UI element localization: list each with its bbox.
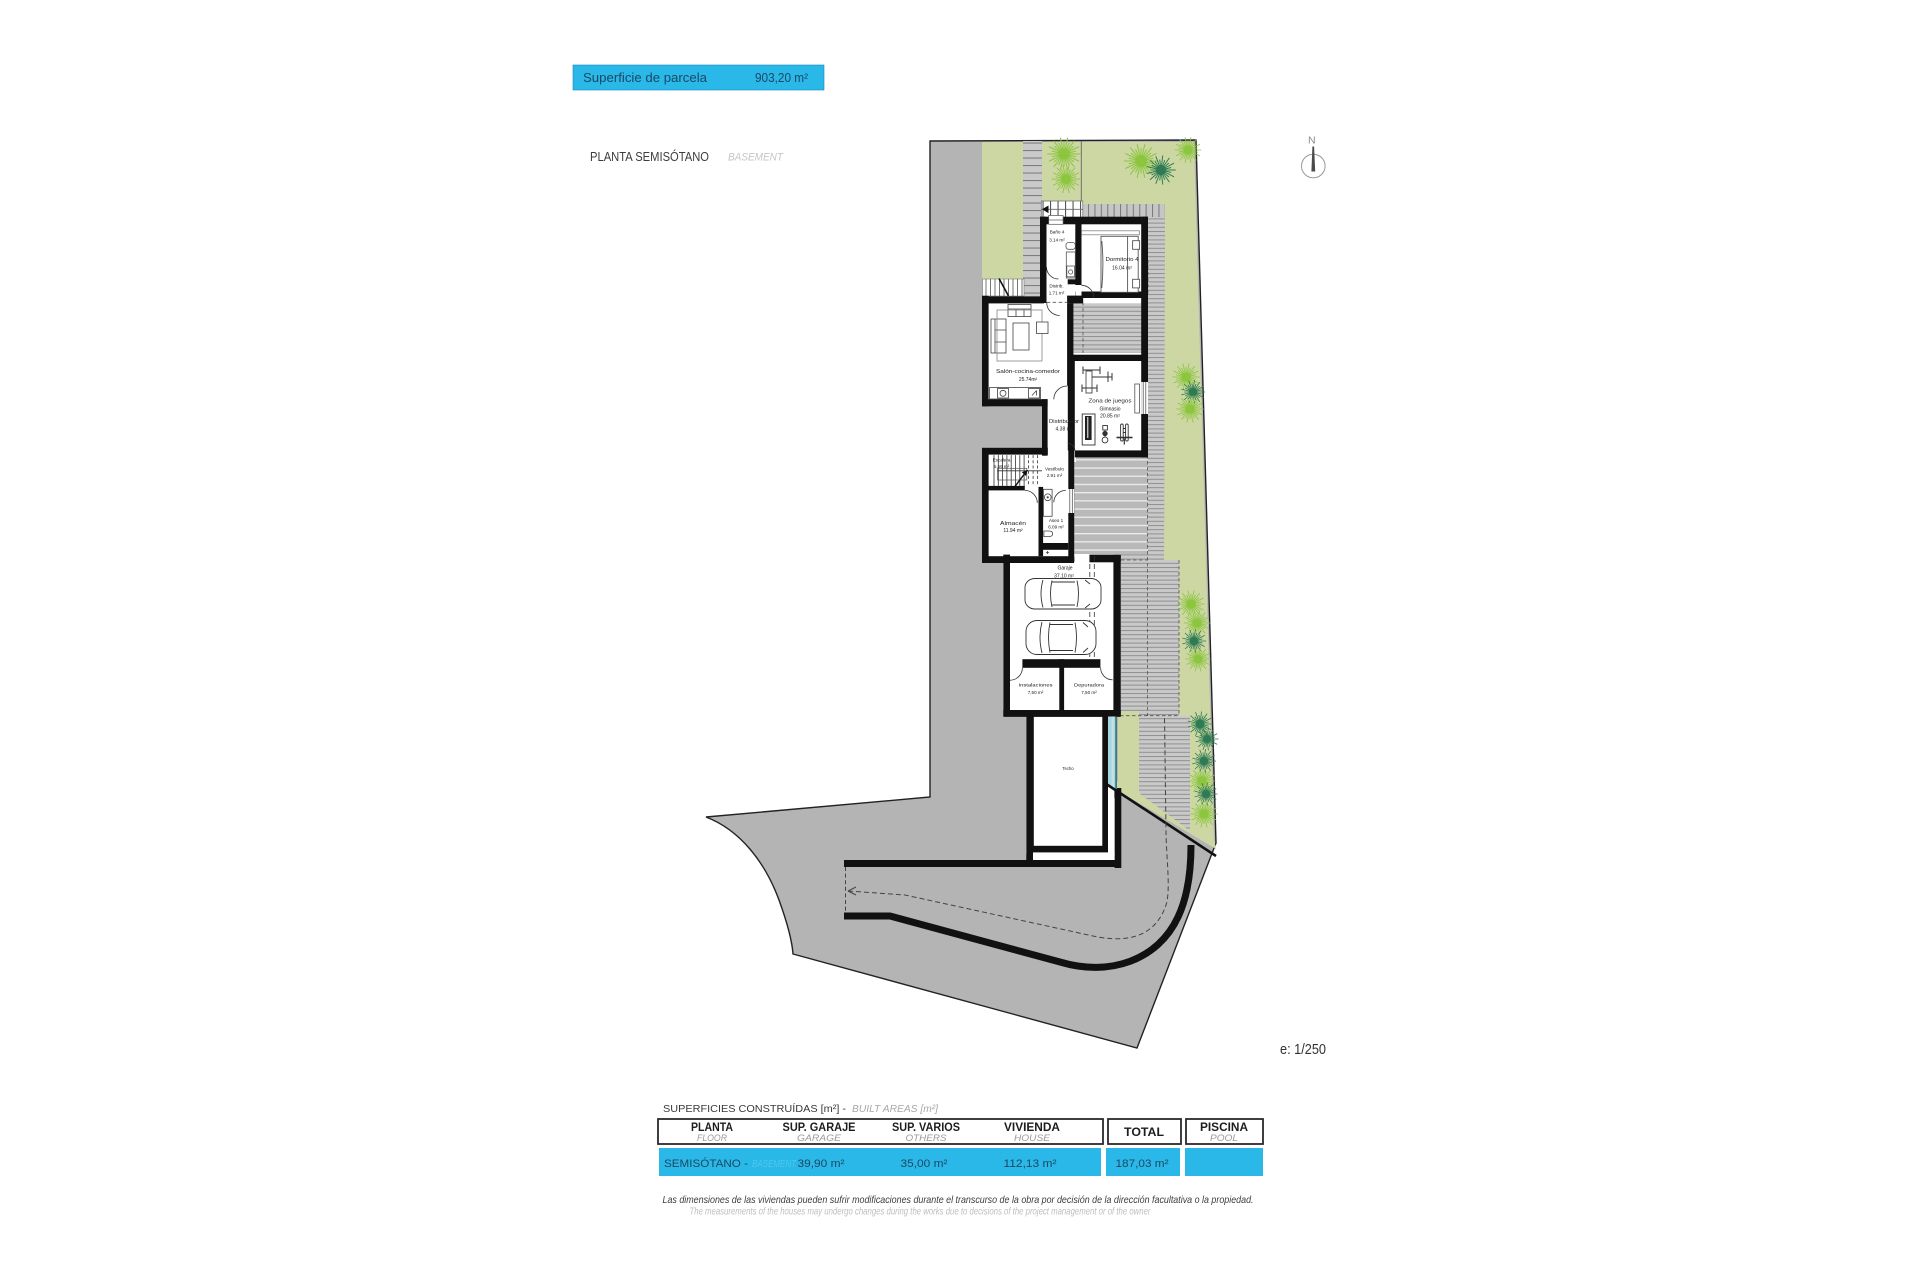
svg-text:BUILT AREAS [m²]: BUILT AREAS [m²] bbox=[852, 1103, 939, 1115]
svg-text:BASEMENT: BASEMENT bbox=[728, 152, 784, 164]
svg-text:e: 1/250: e: 1/250 bbox=[1280, 1042, 1326, 1058]
svg-text:BASEMENT: BASEMENT bbox=[752, 1158, 797, 1170]
svg-text:35,00 m²: 35,00 m² bbox=[901, 1158, 948, 1170]
svg-text:1.71 m²: 1.71 m² bbox=[1049, 291, 1065, 296]
svg-text:Superficie de parcela: Superficie de parcela bbox=[583, 71, 707, 85]
svg-text:POOL: POOL bbox=[1210, 1133, 1238, 1144]
svg-text:Vestíbulo: Vestíbulo bbox=[1045, 467, 1064, 472]
svg-text:4.38 m²: 4.38 m² bbox=[1056, 426, 1073, 432]
svg-text:N: N bbox=[1308, 135, 1316, 147]
svg-text:FLOOR: FLOOR bbox=[697, 1133, 727, 1144]
svg-text:Distrib.: Distrib. bbox=[1049, 284, 1063, 289]
svg-text:Dormitorio 4: Dormitorio 4 bbox=[1106, 257, 1139, 263]
svg-text:Techo: Techo bbox=[1062, 766, 1074, 771]
svg-text:Depuradora: Depuradora bbox=[1074, 682, 1105, 687]
svg-text:Escalera: Escalera bbox=[993, 458, 1011, 463]
svg-text:Distribuidor: Distribuidor bbox=[1049, 419, 1079, 425]
svg-text:Baño 4: Baño 4 bbox=[1050, 230, 1065, 235]
svg-text:Almacén: Almacén bbox=[1000, 521, 1026, 527]
svg-text:OTHERS: OTHERS bbox=[906, 1133, 948, 1144]
svg-text:Aseo 1: Aseo 1 bbox=[1049, 518, 1064, 523]
svg-text:16.04 m²: 16.04 m² bbox=[1112, 266, 1132, 272]
svg-text:187,03 m²: 187,03 m² bbox=[1116, 1158, 1169, 1170]
svg-text:7,50 m²: 7,50 m² bbox=[1081, 690, 1097, 695]
svg-text:Zona de juegos: Zona de juegos bbox=[1089, 399, 1133, 405]
svg-text:GARAGE: GARAGE bbox=[797, 1133, 842, 1144]
svg-text:Salón-cocina-comedor: Salón-cocina-comedor bbox=[996, 369, 1060, 375]
svg-text:39,90 m²: 39,90 m² bbox=[798, 1158, 845, 1170]
svg-text:The measurements of the houses: The measurements of the houses may under… bbox=[690, 1207, 1151, 1218]
svg-text:6.09 m²: 6.09 m² bbox=[1048, 525, 1064, 530]
svg-text:Las dimensiones de las viviend: Las dimensiones de las viviendas pueden … bbox=[663, 1195, 1254, 1206]
svg-text:Gimnasio: Gimnasio bbox=[1099, 406, 1120, 412]
svg-text:903,20 m²: 903,20 m² bbox=[755, 71, 808, 85]
svg-text:37.10 m²: 37.10 m² bbox=[1054, 574, 1074, 580]
svg-text:3.14 m²: 3.14 m² bbox=[1049, 238, 1065, 243]
svg-text:PLANTA SEMISÓTANO: PLANTA SEMISÓTANO bbox=[590, 149, 709, 164]
svg-text:20.85 m²: 20.85 m² bbox=[1100, 414, 1120, 420]
svg-text:112,13 m²: 112,13 m² bbox=[1004, 1158, 1057, 1170]
svg-text:25.74m²: 25.74m² bbox=[1019, 377, 1038, 383]
svg-text:11.94 m²: 11.94 m² bbox=[1003, 528, 1023, 534]
svg-text:SUPERFICIES CONSTRUÍDAS [m²] -: SUPERFICIES CONSTRUÍDAS [m²] - bbox=[663, 1102, 847, 1115]
svg-text:Instalaciones: Instalaciones bbox=[1019, 682, 1054, 687]
svg-text:7,50 m²: 7,50 m² bbox=[1028, 690, 1044, 695]
svg-text:HOUSE: HOUSE bbox=[1014, 1133, 1051, 1144]
svg-text:2.91 m²: 2.91 m² bbox=[1047, 473, 1063, 478]
svg-text:5.59 m²: 5.59 m² bbox=[994, 464, 1010, 469]
svg-text:TOTAL: TOTAL bbox=[1124, 1127, 1164, 1139]
svg-text:SEMISÓTANO -: SEMISÓTANO - bbox=[664, 1157, 748, 1170]
svg-text:Garaje: Garaje bbox=[1057, 566, 1072, 572]
